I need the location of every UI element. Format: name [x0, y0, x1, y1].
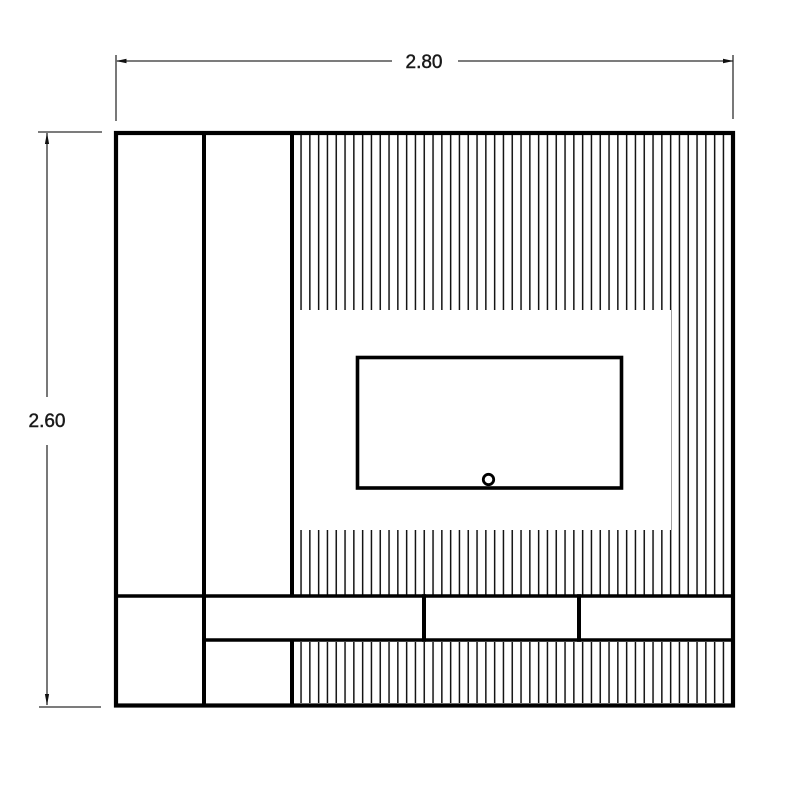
svg-text:2.60: 2.60: [29, 411, 66, 432]
svg-text:2.80: 2.80: [406, 52, 443, 73]
